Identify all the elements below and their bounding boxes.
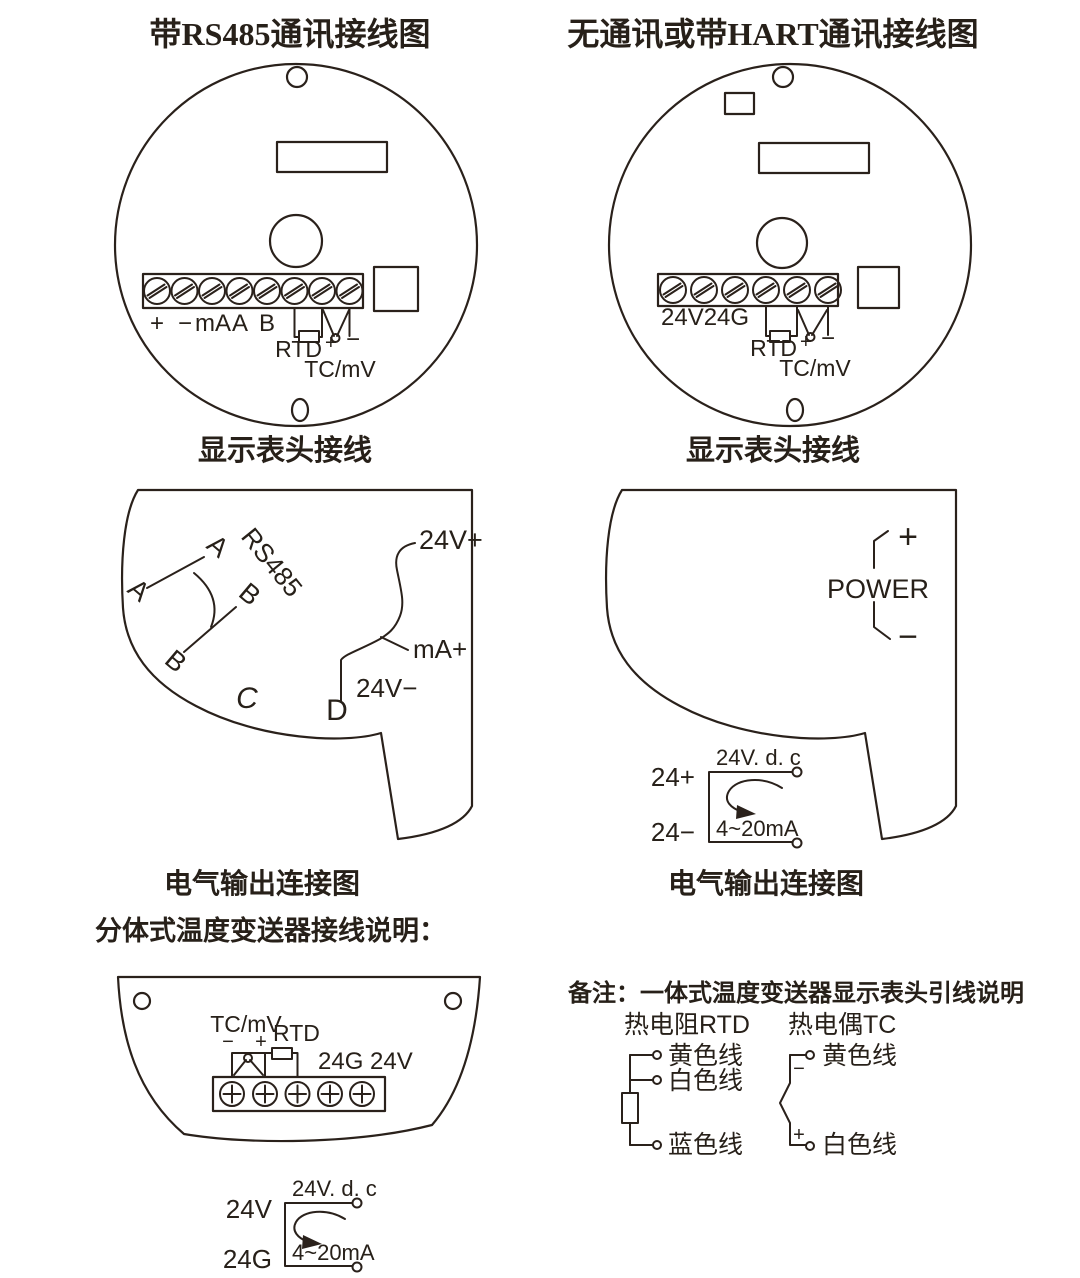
caption-output-right: 电气输出连接图 — [668, 867, 864, 899]
power-label: POWER — [827, 574, 929, 604]
terminal-label-plus: + — [150, 310, 164, 337]
wiring-diagram-page: 带RS485通讯接线图 无通讯或带HART通讯接线图 + − mA A B RT… — [0, 0, 1080, 1278]
rtd-wire-white: 白色线 — [668, 1067, 743, 1095]
dc-neg-label: 24G — [223, 1244, 272, 1274]
mount-hole-icon — [445, 993, 461, 1009]
display-window — [759, 143, 869, 173]
mount-hole-top-icon — [773, 67, 793, 87]
rtd-symbol — [622, 1051, 661, 1149]
split-power-label: 24G 24V — [318, 1048, 413, 1075]
title-hart: 无通讯或带HART通讯接线图 — [567, 16, 978, 52]
round-head-left — [115, 64, 477, 426]
mount-hole-bottom-icon — [292, 399, 308, 421]
tc-plus-right: + — [800, 331, 812, 353]
tc-minus-left: − — [346, 326, 360, 353]
power-minus: − — [898, 618, 918, 656]
lug-b-top: B — [233, 577, 266, 612]
split-plus: + — [255, 1031, 267, 1053]
lug-a-bottom: A — [122, 573, 155, 608]
legend-tc-title: 热电偶TC — [788, 1011, 896, 1039]
tcmv-label-right: TC/mV — [779, 355, 851, 381]
terminal-screws-left — [144, 278, 363, 304]
meter-back-left-labels: A A B B RS485 C D 24V+ mA+ 24V− — [122, 522, 483, 727]
connector-block — [374, 267, 418, 311]
caption-output-left: 电气输出连接图 — [164, 867, 360, 899]
jumper-window — [725, 93, 754, 114]
legend-rtd-title: 热电阻RTD — [624, 1011, 750, 1039]
lug-a-top: A — [201, 529, 234, 564]
terminal-screws-right — [660, 277, 841, 303]
adjust-hole-icon — [757, 218, 807, 268]
dc-supply-left: 24V 24G 24V. d. c 4~20mA — [223, 1176, 377, 1274]
title-rs485: 带RS485通讯接线图 — [150, 16, 431, 52]
mount-hole-icon — [134, 993, 150, 1009]
mount-hole-top-icon — [287, 67, 307, 87]
terminal-label-a: A — [232, 310, 248, 337]
split-minus: − — [222, 1031, 234, 1053]
terminal-label-minus: − — [178, 310, 192, 337]
connector-block — [858, 267, 899, 308]
terminal-screws-split — [220, 1082, 374, 1106]
power-plus: + — [898, 518, 918, 556]
terminal-label-ma: mA — [195, 310, 231, 337]
dc-supply-label: 24V. d. c — [292, 1176, 377, 1201]
dc-pos-label: 24V — [226, 1194, 273, 1224]
tcmv-label-left: TC/mV — [304, 356, 376, 382]
terminal-label-b: B — [259, 310, 275, 337]
tc-wiring-split — [232, 1053, 265, 1077]
dc-current-label: 4~20mA — [716, 816, 799, 841]
caption-display-head-left: 显示表头接线 — [198, 434, 372, 467]
caption-display-head-right: 显示表头接线 — [686, 434, 860, 467]
tc-plus-mark: + — [793, 1124, 805, 1146]
tc-minus-mark: − — [793, 1058, 805, 1080]
rtd-wire-blue: 蓝色线 — [668, 1131, 743, 1159]
dc-current-label: 4~20mA — [292, 1240, 375, 1265]
adjust-hole-icon — [270, 215, 322, 267]
lug-c-label: C — [236, 682, 258, 715]
lead-legend: 备注：一体式温度变送器显示表头引线说明 热电阻RTD 热电偶TC 黄色线 白色线… — [567, 979, 1024, 1159]
split-tcmv-label: TC/mV — [210, 1011, 282, 1037]
dc-neg-label: 24− — [651, 817, 695, 847]
dc-supply-label: 24V. d. c — [716, 745, 801, 770]
rtd-wire-yellow: 黄色线 — [668, 1042, 743, 1070]
rtd-wiring-split — [265, 1048, 298, 1077]
terminal-labels-left: + − mA A B RTD + − TC/mV — [150, 310, 376, 382]
split-transmitter-head — [118, 977, 480, 1141]
wire-ma-plus: mA+ — [413, 634, 467, 664]
tc-wire-white: 白色线 — [822, 1131, 897, 1159]
mount-hole-bottom-icon — [787, 399, 803, 421]
display-window — [277, 142, 387, 172]
rs485-lugs — [147, 557, 236, 652]
tc-plus-left: + — [325, 332, 337, 354]
current-loop-arrow — [294, 1212, 345, 1242]
tc-minus-right: − — [821, 325, 835, 352]
legend-title: 备注：一体式温度变送器显示表头引线说明 — [567, 979, 1024, 1007]
lug-d-label: D — [326, 694, 348, 727]
power-terminals-label: 24V24G — [661, 304, 749, 331]
dc-supply-right: 24+ 24− 24V. d. c 4~20mA — [651, 745, 802, 848]
wire-24v-minus: 24V− — [356, 673, 417, 703]
current-loop-arrow — [727, 780, 782, 812]
wire-24v-plus: 24V+ — [419, 525, 483, 555]
split-rtd-label: RTD — [273, 1020, 320, 1046]
tc-wire-yellow: 黄色线 — [822, 1042, 897, 1070]
dc-pos-label: 24+ — [651, 762, 695, 792]
split-transmitter-note: 分体式温度变送器接线说明： — [95, 915, 446, 946]
